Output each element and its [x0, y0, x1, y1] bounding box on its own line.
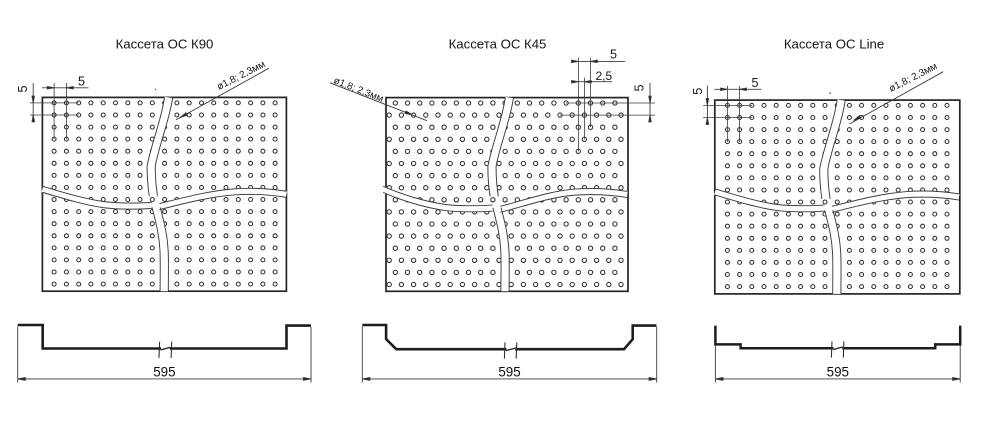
- svg-text:Кассета ОС Line: Кассета ОС Line: [784, 37, 884, 52]
- svg-text:5: 5: [16, 85, 30, 92]
- svg-text:2,5: 2,5: [595, 69, 612, 83]
- svg-text:Кассета ОС К45: Кассета ОС К45: [449, 37, 547, 52]
- svg-text:595: 595: [498, 365, 520, 380]
- svg-text:5: 5: [751, 76, 758, 90]
- svg-text:5: 5: [633, 84, 647, 91]
- svg-text:5: 5: [78, 74, 85, 88]
- svg-text:595: 595: [827, 365, 849, 380]
- svg-text:5: 5: [691, 88, 705, 95]
- svg-text:5: 5: [610, 48, 617, 62]
- svg-text:595: 595: [153, 365, 175, 380]
- svg-text:Кассета ОС К90: Кассета ОС К90: [116, 37, 214, 52]
